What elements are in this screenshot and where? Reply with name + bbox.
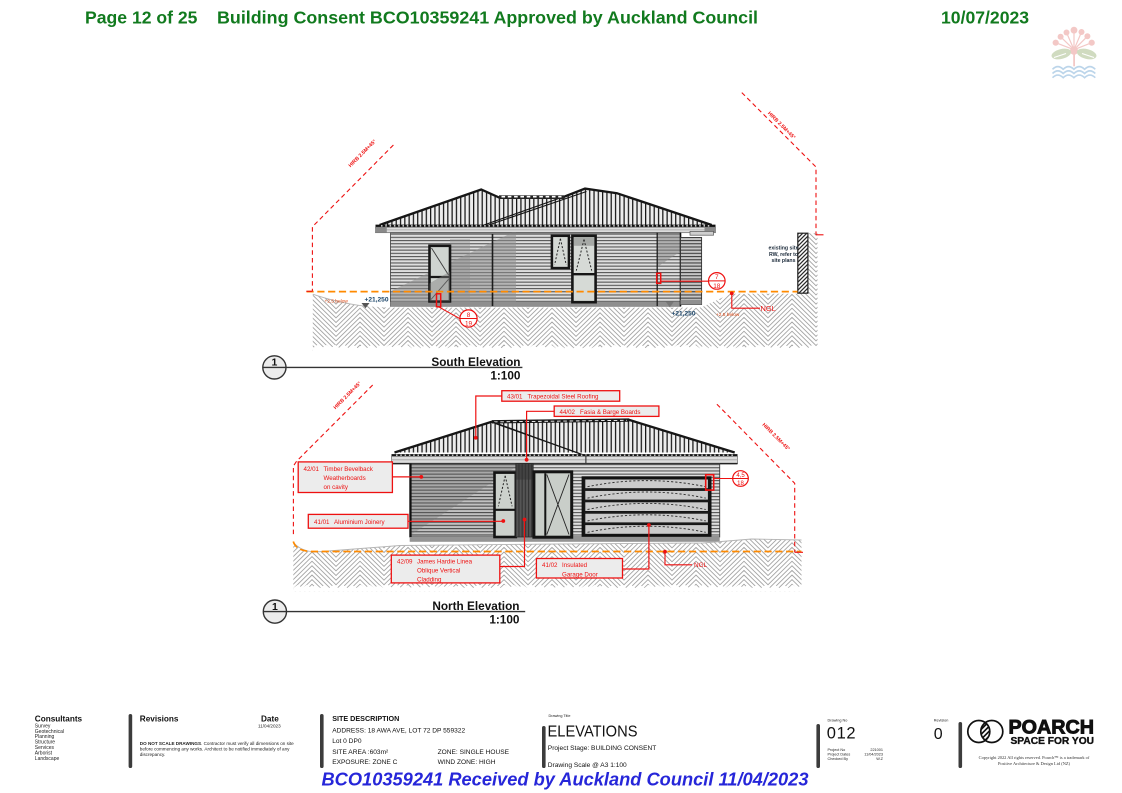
svg-text:existing site: existing site: [769, 246, 799, 252]
svg-text:18: 18: [737, 481, 744, 487]
svg-text:NGL: NGL: [694, 562, 708, 569]
svg-text:North Elevation: North Elevation: [432, 599, 519, 613]
svg-text:on cavity: on cavity: [324, 484, 349, 491]
svg-text:Trapezoidal Steel Roofing: Trapezoidal Steel Roofing: [528, 394, 600, 401]
svg-text:Drawing No: Drawing No: [828, 719, 848, 723]
svg-text:012: 012: [827, 725, 856, 743]
svg-text:Landscape: Landscape: [35, 756, 60, 762]
svg-text:Date: Date: [261, 714, 279, 723]
svg-text:+2.5 below: +2.5 below: [325, 299, 349, 305]
svg-text:Oblique Vertical: Oblique Vertical: [417, 567, 460, 574]
svg-text:Copyright 2022 All rights rese: Copyright 2022 All rights reserved. Poar…: [979, 755, 1090, 760]
svg-text:41/01: 41/01: [314, 519, 330, 526]
svg-text:SPACE FOR YOU: SPACE FOR YOU: [1011, 736, 1095, 747]
svg-text:site plans: site plans: [772, 258, 796, 264]
svg-text:41/02: 41/02: [542, 562, 558, 569]
svg-text:Revision: Revision: [934, 719, 949, 723]
svg-text:Consultants: Consultants: [35, 714, 83, 723]
svg-text:RW, refer to: RW, refer to: [769, 252, 798, 258]
svg-text:42/01: 42/01: [304, 466, 320, 473]
svg-text:7: 7: [715, 274, 719, 281]
svg-text:discrepancy.: discrepancy.: [140, 752, 165, 757]
svg-text:before commencing any works. A: before commencing any works. Architect t…: [140, 746, 290, 751]
svg-text:43/01: 43/01: [507, 394, 523, 401]
svg-text:Project No: Project No: [828, 748, 846, 752]
svg-text:South Elevation: South Elevation: [431, 355, 520, 369]
svg-text:HIRB 2.5M+45°: HIRB 2.5M+45°: [766, 111, 796, 141]
svg-text:Page 12 of 25: Page 12 of 25: [85, 8, 198, 28]
svg-text:8: 8: [467, 312, 471, 319]
svg-text:+21,250: +21,250: [672, 310, 696, 317]
svg-text:4,5: 4,5: [736, 473, 745, 479]
svg-text:Garage Door: Garage Door: [562, 571, 598, 578]
svg-text:11/04/2023: 11/04/2023: [258, 724, 281, 729]
svg-text:Aluminium Joinery: Aluminium Joinery: [334, 519, 385, 526]
svg-text:1:100: 1:100: [489, 613, 520, 627]
svg-text:+2.5 below: +2.5 below: [716, 312, 740, 318]
svg-text:Checked By: Checked By: [828, 757, 849, 761]
svg-text:Timber Bevelback: Timber Bevelback: [324, 466, 374, 473]
svg-text:W.Z: W.Z: [876, 757, 883, 761]
svg-text:ADDRESS: 18 AWA AVE, LOT 72 DP: ADDRESS: 18 AWA AVE, LOT 72 DP 559322: [332, 727, 465, 734]
svg-text:EXPOSURE: ZONE C: EXPOSURE: ZONE C: [332, 759, 397, 766]
svg-text:221001: 221001: [870, 748, 883, 752]
svg-text:0: 0: [934, 726, 943, 743]
svg-text:HIRB 2.5M+45°: HIRB 2.5M+45°: [761, 422, 791, 452]
svg-text:HIRB 2.5M+45°: HIRB 2.5M+45°: [348, 139, 378, 169]
svg-text:Drawing Title: Drawing Title: [549, 714, 571, 718]
svg-text:BCO10359241 Received by Auckla: BCO10359241 Received by Auckland Council…: [322, 768, 810, 789]
svg-text:18: 18: [713, 283, 721, 290]
svg-text:James Hardie Linea: James Hardie Linea: [417, 559, 473, 566]
svg-text:SITE AREA :603m²: SITE AREA :603m²: [332, 749, 389, 756]
svg-text:11/04/2023: 11/04/2023: [864, 752, 883, 756]
svg-text:44/02: 44/02: [560, 409, 576, 416]
svg-text:10/07/2023: 10/07/2023: [941, 8, 1029, 28]
svg-text:Fasia & Barge Boards: Fasia & Barge Boards: [580, 409, 641, 416]
svg-text:19: 19: [465, 320, 473, 327]
svg-text:Lot 0 DP0: Lot 0 DP0: [332, 738, 362, 745]
svg-text:Insulated: Insulated: [562, 562, 588, 569]
svg-text:Building Consent BCO10359241 A: Building Consent BCO10359241 Approved by…: [217, 8, 758, 28]
svg-text:Project Stage: BUILDING CONSEN: Project Stage: BUILDING CONSENT: [548, 745, 656, 752]
svg-text:Weatherboards: Weatherboards: [324, 475, 366, 482]
svg-text:HIRB 2.5M+45°: HIRB 2.5M+45°: [333, 381, 363, 411]
svg-text:ZONE: SINGLE HOUSE: ZONE: SINGLE HOUSE: [438, 749, 510, 756]
svg-text:ELEVATIONS: ELEVATIONS: [548, 724, 638, 741]
svg-text:Revisions: Revisions: [140, 714, 179, 723]
svg-text:NGL: NGL: [761, 304, 776, 313]
svg-text:SITE DESCRIPTION: SITE DESCRIPTION: [332, 714, 399, 723]
svg-text:WIND ZONE: HIGH: WIND ZONE: HIGH: [438, 759, 496, 766]
svg-text:1:100: 1:100: [490, 368, 521, 382]
svg-text:+21,250: +21,250: [365, 297, 389, 304]
svg-text:Project Dates: Project Dates: [828, 752, 851, 756]
svg-text:Positive Architecture & Design: Positive Architecture & Design Ltd (NZ): [998, 761, 1071, 766]
svg-text:Cladding: Cladding: [417, 576, 442, 583]
svg-text:DO NOT SCALE DRAWINGS. Contrac: DO NOT SCALE DRAWINGS. Contractor must v…: [140, 741, 294, 746]
svg-text:42/09: 42/09: [397, 559, 413, 566]
